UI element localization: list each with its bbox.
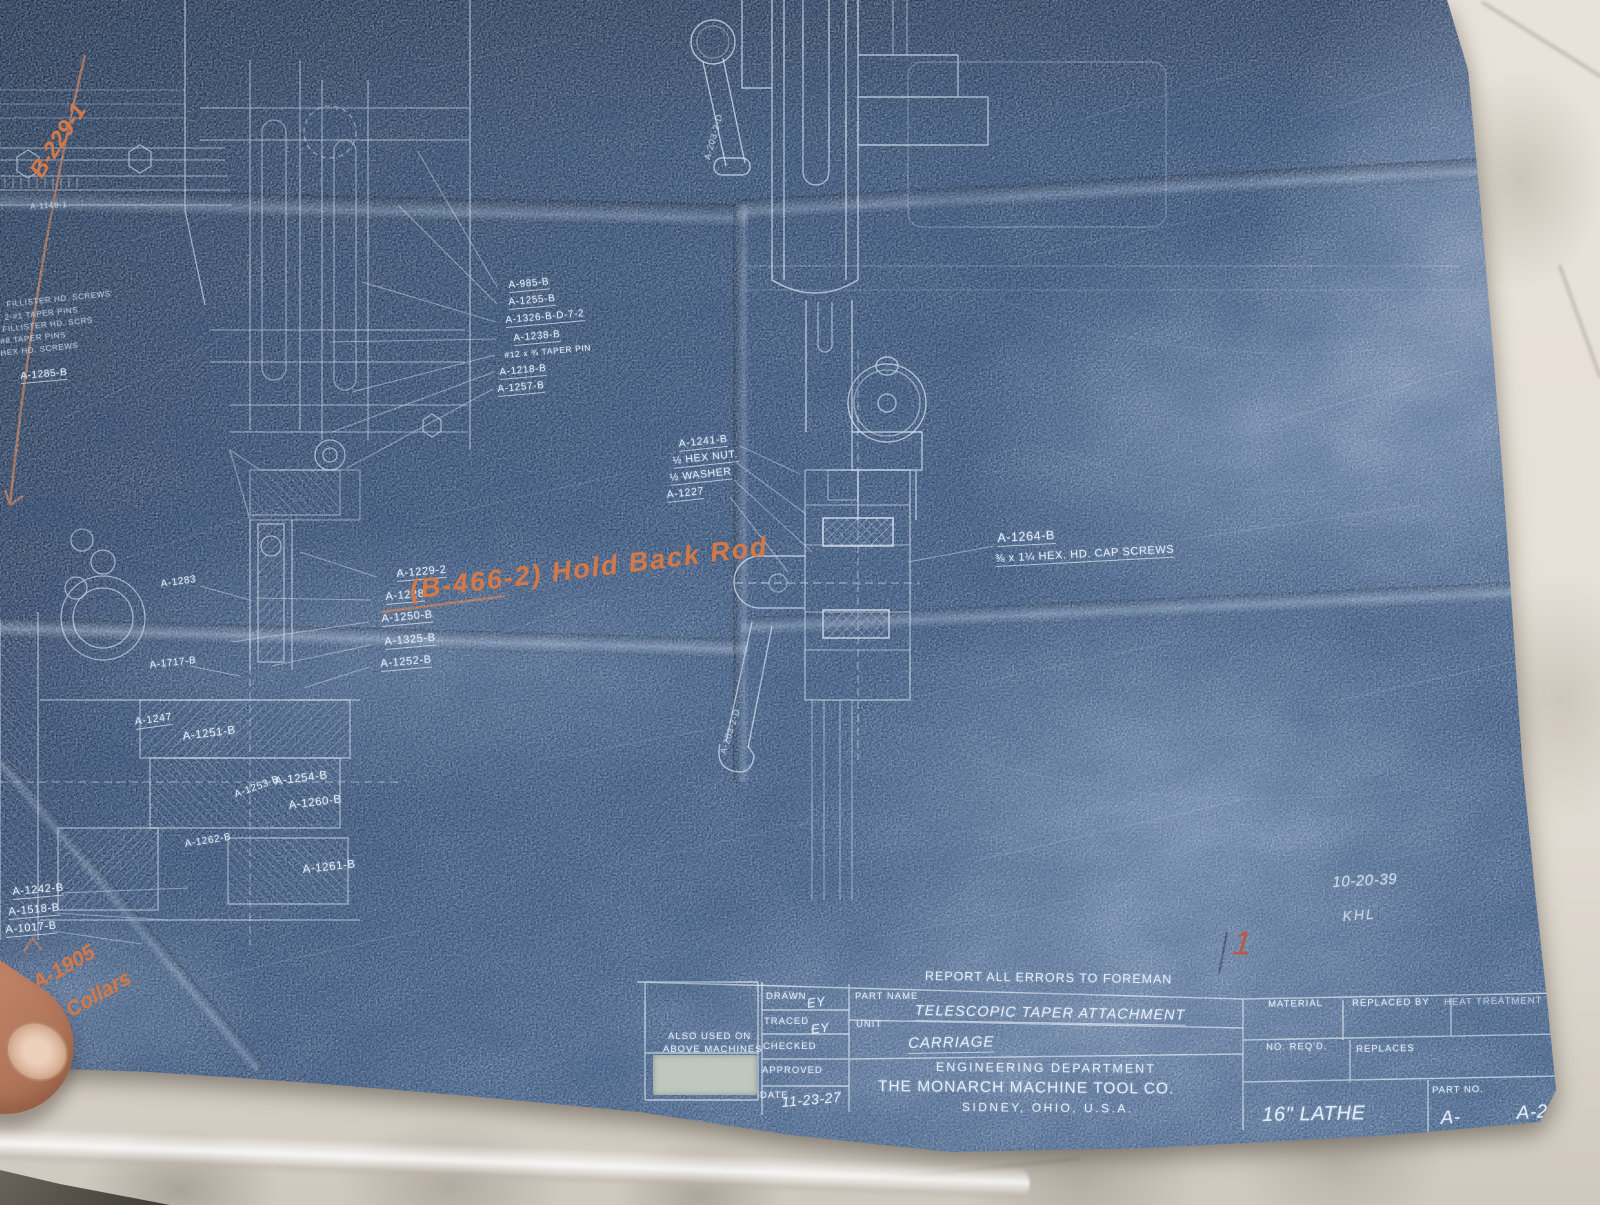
unit-value: CARRIAGE: [908, 1033, 995, 1054]
no-reqd-label: NO. REQ'D.: [1266, 1041, 1328, 1053]
handwritten-date-note: 10-20-39: [1332, 871, 1398, 891]
company-city: SIDNEY, OHIO, U.S.A.: [962, 1100, 1134, 1115]
replaced-by-label: REPLACED BY: [1352, 997, 1430, 1009]
checked-label: CHECKED: [763, 1041, 816, 1052]
part-no-label: PART NO.: [1432, 1084, 1484, 1096]
drawn-by-initials: EY: [806, 993, 826, 1010]
material-label: MATERIAL: [1268, 998, 1323, 1010]
part-no-value: A-2: [1516, 1101, 1548, 1125]
part-label: A-1264-B: [997, 528, 1055, 547]
traced-by-initials: EY: [810, 1019, 830, 1036]
traced-label: TRACED: [764, 1016, 809, 1027]
blueprint-sheet-wrap: A-985-B A-1255-B A-1326-B-D-7-2 A-1238-B…: [0, 0, 1600, 1205]
erased-patch: [653, 1055, 757, 1095]
also-used-on-label: ALSO USED ON: [668, 1031, 751, 1042]
machine-value: 16" LATHE: [1262, 1102, 1366, 1127]
drawn-label: DRAWN: [766, 991, 807, 1002]
handwritten-red-mark: 1: [1231, 924, 1253, 964]
approved-label: APPROVED: [762, 1065, 823, 1076]
company-name: THE MONARCH MACHINE TOOL CO.: [878, 1078, 1175, 1099]
blueprint-sheet: A-985-B A-1255-B A-1326-B-D-7-2 A-1238-B…: [0, 0, 1600, 1205]
above-machines-label: ABOVE MACHINES: [663, 1044, 763, 1055]
handwritten-initials: KHL: [1342, 906, 1376, 924]
unit-label: UNIT: [856, 1019, 882, 1030]
engineering-department: ENGINEERING DEPARTMENT: [936, 1060, 1156, 1076]
heat-treatment-label: HEAT TREATMENT: [1444, 995, 1542, 1008]
part-no-prefix: A-: [1440, 1107, 1461, 1130]
photo-of-blueprint: A-985-B A-1255-B A-1326-B-D-7-2 A-1238-B…: [0, 0, 1600, 1205]
part-name-label: PART NAME: [855, 991, 918, 1002]
replaces-label: REPLACES: [1356, 1043, 1415, 1055]
